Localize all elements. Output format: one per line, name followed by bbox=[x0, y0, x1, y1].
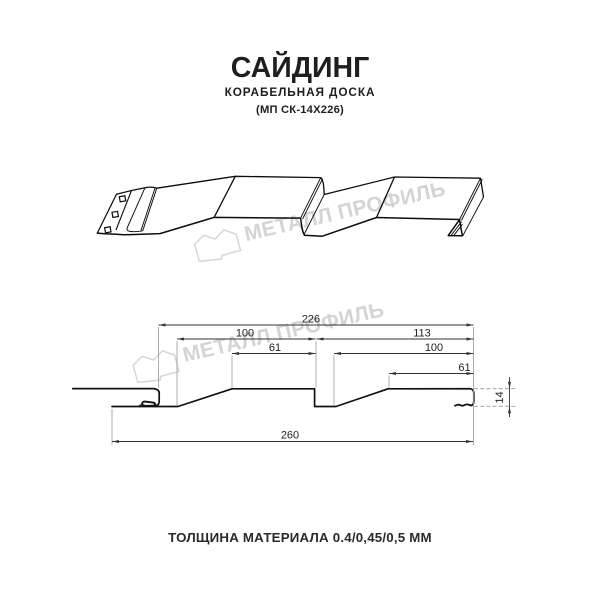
svg-text:МЕТАЛЛ ПРОФИЛЬ: МЕТАЛЛ ПРОФИЛЬ bbox=[181, 298, 387, 367]
svg-text:МЕТАЛЛ ПРОФИЛЬ: МЕТАЛЛ ПРОФИЛЬ bbox=[242, 177, 448, 246]
svg-text:113: 113 bbox=[413, 328, 431, 340]
svg-text:14: 14 bbox=[494, 391, 506, 403]
svg-text:61: 61 bbox=[269, 342, 281, 354]
svg-text:226: 226 bbox=[302, 313, 320, 325]
svg-text:260: 260 bbox=[281, 430, 299, 442]
svg-text:100: 100 bbox=[236, 328, 254, 340]
svg-text:100: 100 bbox=[425, 342, 443, 354]
svg-text:61: 61 bbox=[458, 362, 470, 374]
